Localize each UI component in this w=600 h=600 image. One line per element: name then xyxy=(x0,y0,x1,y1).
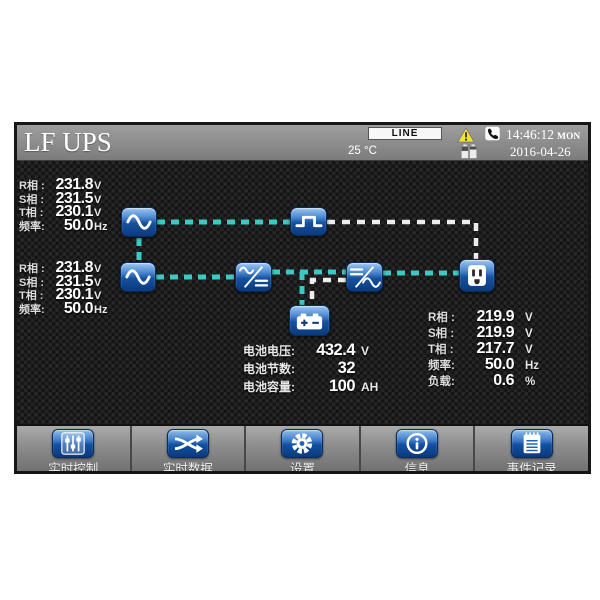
app-title: LF UPS xyxy=(24,127,112,158)
reading-value: 432.4 xyxy=(309,341,355,360)
nav-item-label: 事件记录 xyxy=(507,458,557,474)
reading-unit: V xyxy=(94,180,101,192)
nav-bar: 实时控制 实时数据 xyxy=(17,424,588,471)
square-wave-bypass-switch-icon xyxy=(290,207,327,236)
ups-hmi-screen: LF UPS LINE 25 °C xyxy=(14,122,591,474)
reading-value: 32 xyxy=(309,359,355,378)
flow-diagram: R相 : 231.8 V S相 : 231.5 V T相 : 230.1 V 频… xyxy=(17,161,588,424)
reading-row: 负载: 0.6 % xyxy=(428,372,547,388)
reading-row: 电池电压: 432.4 V xyxy=(243,341,378,359)
reading-value: 100 xyxy=(309,377,355,396)
output-block: R相 : 219.9 V S相 : 219.9 V T相 : 217.7 V 频… xyxy=(428,308,547,388)
nav-item-label: 实时控制 xyxy=(48,458,98,474)
nav-item-event-log[interactable]: 事件记录 xyxy=(475,426,588,471)
nav-item-settings[interactable]: 设置 xyxy=(246,426,361,471)
reading-unit: V xyxy=(525,312,547,324)
reading-value: 50.0 xyxy=(49,300,93,318)
reading-unit: Hz xyxy=(94,304,107,316)
reading-label: 频率: xyxy=(19,301,49,317)
sliders-icon xyxy=(52,429,94,458)
nav-item-realtime-data[interactable]: 实时数据 xyxy=(132,426,247,471)
reading-unit: Hz xyxy=(94,221,107,233)
reading-row: 电池节数: 32 xyxy=(243,359,378,377)
event-log-icon xyxy=(511,429,553,458)
nav-item-label: 信息 xyxy=(405,458,430,474)
reading-row: R相 : 219.9 V xyxy=(428,308,547,324)
reading-row: R相 : 231.8 V xyxy=(19,176,107,190)
reading-unit: V xyxy=(94,263,101,275)
temperature-reading: 25 °C xyxy=(348,145,377,157)
battery-info-block: 电池电压: 432.4 V 电池节数: 32 电池容量: 100 AH xyxy=(243,341,378,395)
main-input-block: R相 : 231.8 V S相 : 231.5 V T相 : 230.1 V 频… xyxy=(19,259,107,313)
reading-label: S相 : xyxy=(428,325,464,341)
warning-icon xyxy=(457,127,475,143)
gear-icon xyxy=(281,429,323,458)
inverter-icon xyxy=(346,262,383,292)
nav-item-label: 实时数据 xyxy=(163,458,213,474)
battery-cells-icon xyxy=(460,144,478,159)
reading-row: R相 : 231.8 V xyxy=(19,259,107,273)
reading-unit: Hz xyxy=(525,360,547,372)
clock-time: 14:46:12MON xyxy=(506,127,580,143)
reading-row: 频率: 50.0 Hz xyxy=(428,356,547,372)
reading-unit: V xyxy=(94,207,101,219)
nav-item-info[interactable]: 信息 xyxy=(361,426,476,471)
reading-unit: V xyxy=(94,194,101,206)
reading-unit: V xyxy=(94,277,101,289)
reading-unit: V xyxy=(525,328,547,340)
shuffle-icon xyxy=(167,429,209,458)
ac-wave-input-icon xyxy=(120,262,156,292)
reading-unit: % xyxy=(525,376,547,388)
bypass-input-block: R相 : 231.8 V S相 : 231.5 V T相 : 230.1 V 频… xyxy=(19,176,107,230)
date-display: 2016-04-26 xyxy=(510,144,571,160)
reading-unit: V xyxy=(94,290,101,302)
reading-value: 50.0 xyxy=(49,217,93,235)
nav-item-label: 设置 xyxy=(290,458,315,474)
header-bar: LF UPS LINE 25 °C xyxy=(17,125,588,161)
weekday: MON xyxy=(557,132,580,142)
output-socket-icon xyxy=(459,259,495,292)
reading-label: R相 : xyxy=(428,309,464,325)
reading-value: 0.6 xyxy=(464,372,514,390)
line-status-indicator: LINE xyxy=(368,127,442,140)
rectifier-icon xyxy=(235,262,272,292)
phone-icon xyxy=(484,126,501,141)
reading-row: T相 : 217.7 V xyxy=(428,340,547,356)
reading-label: 频率: xyxy=(19,218,49,234)
reading-row: S相 : 219.9 V xyxy=(428,324,547,340)
nav-item-realtime-control[interactable]: 实时控制 xyxy=(17,426,132,471)
page: LF UPS LINE 25 °C xyxy=(0,0,600,600)
reading-label: 电池容量: xyxy=(243,378,309,395)
info-icon xyxy=(396,429,438,458)
ac-wave-bypass-icon xyxy=(121,207,157,237)
reading-unit: AH xyxy=(361,380,378,394)
reading-unit: V xyxy=(525,344,547,356)
reading-label: 电池节数: xyxy=(243,360,309,377)
reading-row: 电池容量: 100 AH xyxy=(243,377,378,395)
reading-label: T相 : xyxy=(428,341,464,357)
battery-icon xyxy=(289,305,330,336)
reading-label: 频率: xyxy=(428,357,464,373)
time-value: 14:46:12 xyxy=(506,127,554,142)
reading-label: 电池电压: xyxy=(243,342,309,359)
reading-label: 负载: xyxy=(428,373,464,389)
reading-unit: V xyxy=(361,344,369,358)
